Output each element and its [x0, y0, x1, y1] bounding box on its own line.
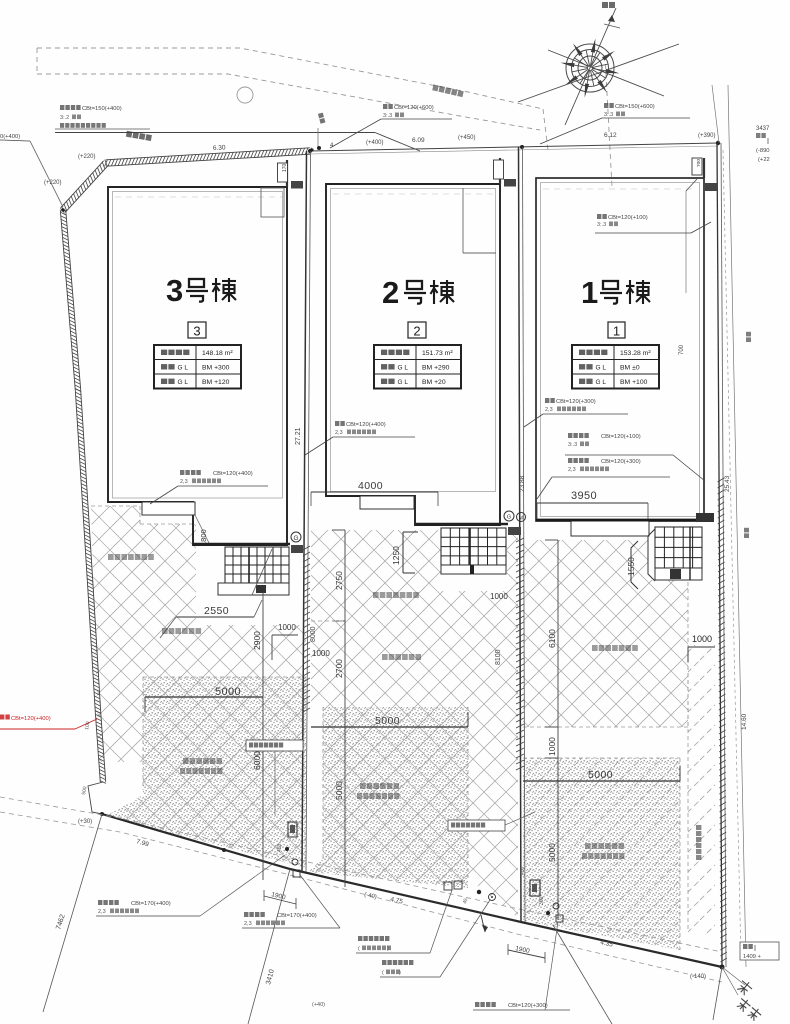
svg-text:CBt=120(+100): CBt=120(+100): [608, 215, 648, 221]
svg-text:CBt=120(+400): CBt=120(+400): [346, 422, 386, 428]
svg-text:CBt=150(+600): CBt=150(+600): [615, 104, 655, 110]
svg-text:BM +290: BM +290: [422, 365, 450, 372]
svg-text:6.12: 6.12: [604, 132, 617, 139]
svg-text:23.88: 23.88: [519, 475, 526, 492]
svg-text:3:.3: 3:.3: [604, 112, 613, 118]
svg-text:1000: 1000: [547, 737, 557, 756]
svg-text:BM +100: BM +100: [620, 379, 648, 386]
svg-text:153.28 m²: 153.28 m²: [620, 350, 651, 357]
svg-text:(+450): (+450): [458, 135, 476, 141]
svg-text:2700: 2700: [334, 659, 344, 678]
svg-text:2: 2: [382, 275, 399, 310]
svg-text:(-890: (-890: [756, 148, 770, 154]
svg-text:6.30: 6.30: [213, 144, 226, 152]
svg-text:2550: 2550: [204, 605, 229, 617]
svg-text:3:.2: 3:.2: [60, 115, 69, 121]
svg-text:170: 170: [282, 163, 288, 172]
svg-text:(: (: [358, 946, 360, 952]
svg-text:BM ±0: BM ±0: [620, 365, 640, 372]
svg-text:G L: G L: [178, 365, 189, 372]
svg-text:300: 300: [539, 896, 545, 905]
svg-text:3:.3: 3:.3: [568, 442, 577, 448]
svg-text:1000: 1000: [692, 634, 712, 644]
svg-text:5000: 5000: [215, 686, 241, 698]
svg-text:BM +300: BM +300: [202, 365, 230, 372]
svg-text:): ): [387, 946, 389, 952]
svg-text:CBt=120(+300): CBt=120(+300): [601, 459, 641, 465]
svg-text:G L: G L: [398, 365, 409, 372]
svg-text:5000: 5000: [375, 715, 400, 727]
svg-text:3950: 3950: [571, 490, 597, 502]
svg-text:G L: G L: [178, 379, 189, 386]
svg-text:5000: 5000: [334, 781, 344, 800]
svg-text:3: 3: [193, 324, 200, 339]
svg-text:2,3: 2,3: [568, 467, 576, 473]
svg-text:1: 1: [581, 275, 598, 310]
svg-text:6100: 6100: [547, 629, 557, 648]
svg-text:(+30): (+30): [78, 819, 92, 825]
svg-text:CBt=120(+100): CBt=120(+100): [601, 434, 641, 440]
svg-text:148.18 m²: 148.18 m²: [202, 350, 233, 357]
svg-text:(+390): (+390): [698, 133, 716, 139]
svg-text:1: 1: [613, 324, 620, 339]
svg-text:4000: 4000: [358, 480, 383, 492]
svg-text:G L: G L: [596, 365, 607, 372]
svg-text:BM +120: BM +120: [202, 379, 230, 386]
svg-text:3:.3: 3:.3: [383, 113, 392, 119]
svg-text:14.60: 14.60: [741, 713, 748, 730]
svg-text:5000: 5000: [547, 843, 557, 862]
svg-text:0(+400): 0(+400): [0, 134, 20, 140]
svg-text:3437: 3437: [756, 126, 770, 132]
svg-text:BM +20: BM +20: [422, 379, 446, 386]
svg-text:G: G: [507, 515, 511, 521]
svg-text:(: (: [382, 970, 384, 976]
svg-text:400: 400: [520, 866, 526, 875]
svg-text:(+22: (+22: [758, 157, 770, 163]
svg-text:): ): [399, 970, 401, 976]
svg-text:CBt=150(+400): CBt=150(+400): [82, 106, 122, 112]
svg-text:G L: G L: [596, 379, 607, 386]
svg-text:1550: 1550: [626, 557, 636, 576]
svg-text:CBt=120(+300): CBt=120(+300): [508, 1003, 548, 1009]
svg-text:8100: 8100: [495, 649, 502, 665]
svg-text:27.21: 27.21: [295, 427, 302, 445]
svg-text:2,3: 2,3: [180, 479, 188, 485]
svg-text:CBt=120(+300): CBt=120(+300): [556, 399, 596, 405]
svg-text:(+220): (+220): [44, 180, 62, 186]
svg-text:1000: 1000: [490, 592, 508, 601]
svg-text:25.43: 25.43: [724, 475, 731, 492]
svg-text:2900: 2900: [252, 631, 262, 650]
svg-text:5000: 5000: [588, 769, 613, 781]
svg-text:1000: 1000: [312, 649, 330, 658]
svg-text:4·: 4·: [330, 143, 335, 149]
svg-text:G L: G L: [398, 379, 409, 386]
svg-text:1000: 1000: [278, 623, 296, 632]
svg-text:3:.3: 3:.3: [597, 222, 606, 228]
svg-text:6000: 6000: [252, 751, 262, 770]
svg-text:2,3: 2,3: [335, 430, 343, 436]
svg-text:2,3: 2,3: [98, 909, 106, 915]
svg-text:G: G: [293, 535, 298, 542]
svg-text:(+400): (+400): [366, 140, 384, 146]
svg-text:1409 +: 1409 +: [743, 954, 762, 960]
svg-text:151.73 m²: 151.73 m²: [422, 350, 453, 357]
svg-text:(-140): (-140): [690, 974, 706, 980]
svg-text:1250: 1250: [391, 546, 401, 565]
svg-text:6.09: 6.09: [412, 137, 425, 144]
svg-text:3: 3: [166, 273, 183, 308]
svg-text:(+220): (+220): [78, 154, 96, 160]
svg-text:2: 2: [413, 324, 420, 339]
svg-text:2750: 2750: [334, 571, 344, 590]
svg-text:2,3: 2,3: [545, 407, 553, 413]
svg-text:CBt=120(+400): CBt=120(+400): [11, 716, 51, 722]
svg-text:CBt=120(+600): CBt=120(+600): [394, 105, 434, 111]
svg-text:CBt=170(+400): CBt=170(+400): [131, 901, 171, 907]
svg-text:700: 700: [679, 344, 685, 355]
svg-text:700: 700: [696, 159, 702, 167]
svg-text:450: 450: [277, 843, 283, 852]
svg-text:8000: 8000: [310, 626, 317, 642]
svg-text:CBt=170(+400): CBt=170(+400): [277, 913, 317, 919]
svg-text:2,3: 2,3: [244, 921, 252, 927]
svg-text:M: M: [519, 516, 523, 522]
svg-text:(+40): (+40): [312, 1002, 325, 1008]
svg-text:CBt=120(+400): CBt=120(+400): [213, 471, 253, 477]
